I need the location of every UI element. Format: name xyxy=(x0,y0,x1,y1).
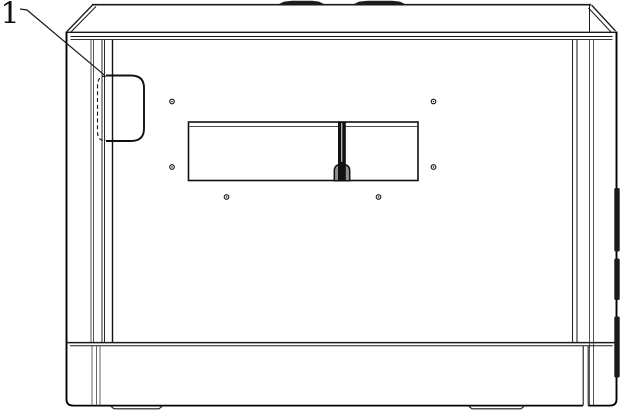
screw-hole-center xyxy=(433,101,435,103)
cabinet-sides xyxy=(67,32,617,406)
rear-panel-frame xyxy=(102,40,577,343)
device-rear-view-drawing: 1 xyxy=(0,0,622,412)
top-left-chamfer-inner xyxy=(71,7,97,33)
handle-visible-outline xyxy=(106,76,144,142)
screw-hole-center xyxy=(171,166,173,168)
leader-line xyxy=(20,9,105,75)
figure-canvas: 1 xyxy=(0,0,622,412)
reference-numeral-1: 1 xyxy=(1,0,20,32)
top-cover xyxy=(67,1,616,40)
top-right-chamfer-inner xyxy=(589,8,612,33)
top-pad-left xyxy=(278,1,325,5)
base xyxy=(67,343,617,409)
hinge-bars xyxy=(614,188,619,378)
top-pad-right xyxy=(353,1,406,5)
hinge-bar xyxy=(614,259,619,301)
screw-hole-center xyxy=(378,196,380,198)
hinge-bar xyxy=(614,188,619,252)
screw-hole-center xyxy=(171,101,173,103)
reference-annotation: 1 xyxy=(1,0,105,75)
hinge-bar xyxy=(614,317,619,378)
mounting-plate xyxy=(189,122,419,181)
top-right-chamfer-outer xyxy=(592,5,616,31)
screw-hole-center xyxy=(226,196,228,198)
top-left-chamfer-outer xyxy=(67,5,93,32)
screw-hole-center xyxy=(433,166,435,168)
mounting-plate-outline xyxy=(189,122,419,181)
left-outer-edge xyxy=(67,32,74,406)
